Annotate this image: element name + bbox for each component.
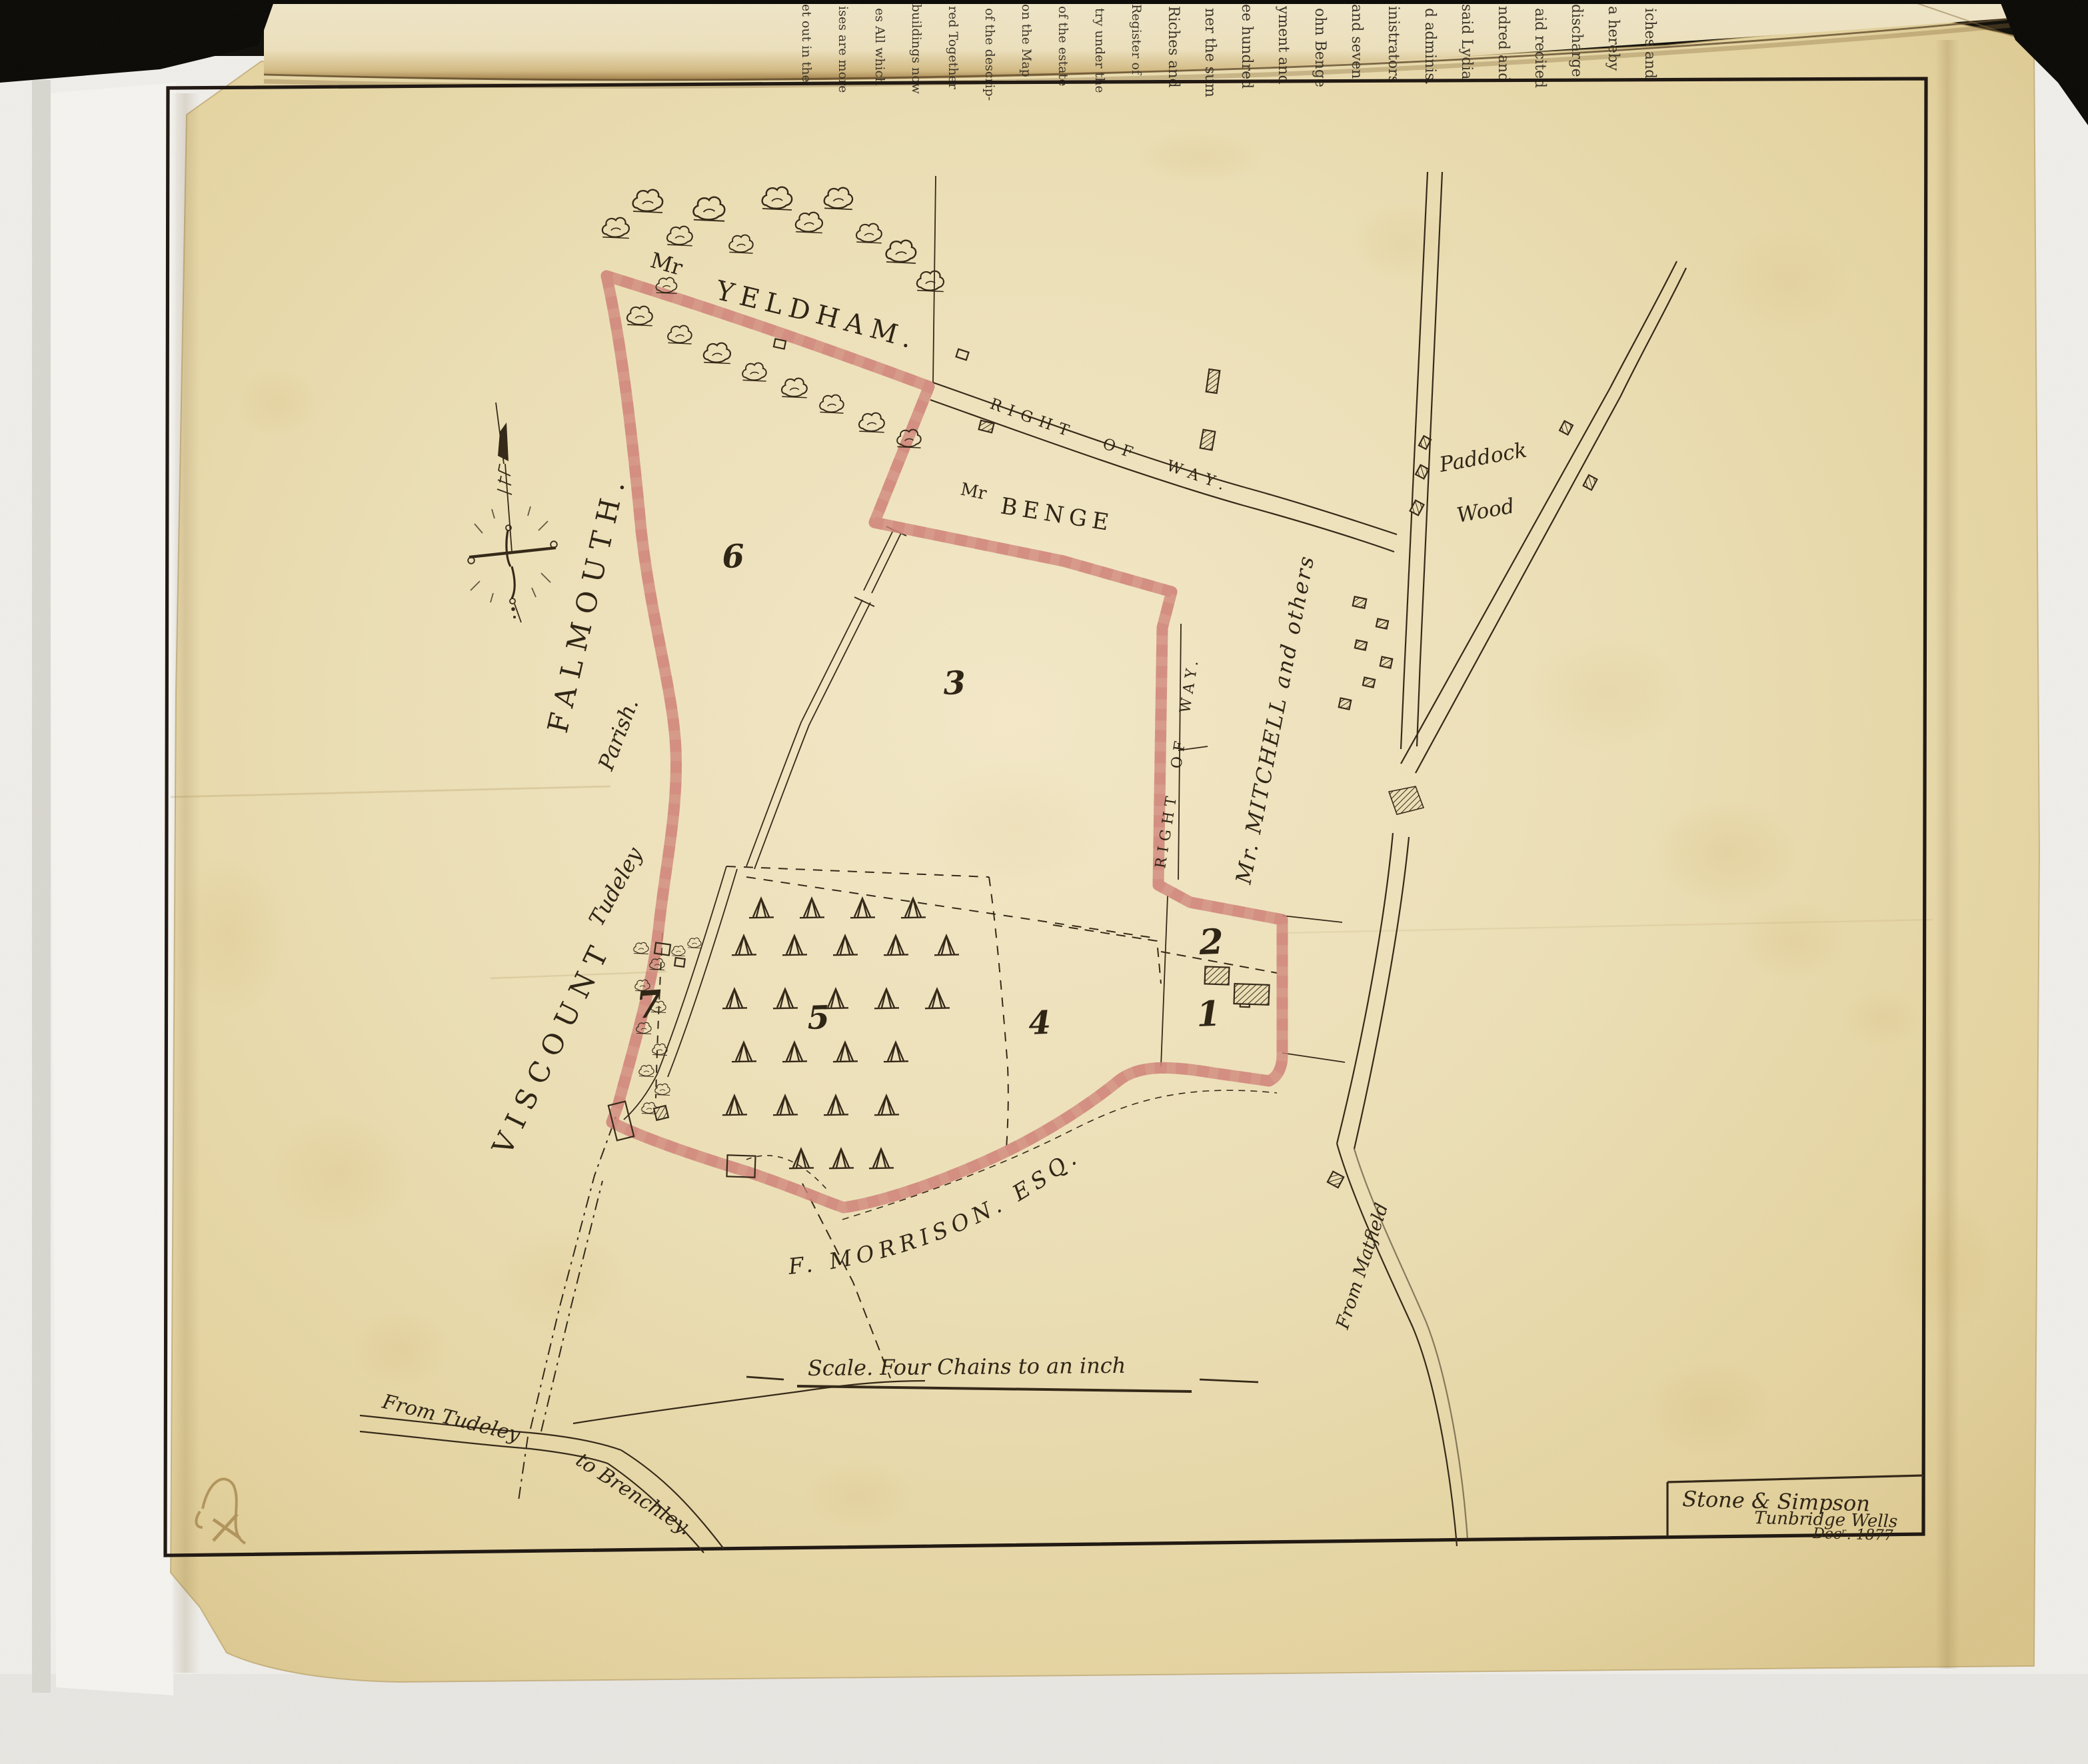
building-hatched [1206,369,1220,393]
book-text-line: on the Map [1019,4,1034,77]
paper-stain [1645,1359,1773,1455]
paper-stain [349,1309,451,1389]
book-text-line: ee hundred [1238,4,1255,89]
building-hatched [1339,698,1352,709]
book-text-line: said Lydia [1458,4,1475,79]
book-text-line: Register of [1129,4,1144,76]
building-hatched [1363,677,1375,687]
paper-stain [267,1113,413,1233]
book-text-line: aid recited [1532,8,1548,88]
book-text-line: a hereby [1605,6,1621,71]
book-text-line: d adminis. [1422,8,1438,85]
paper-stain [171,856,288,1016]
paper-stain [920,760,1106,893]
parcel-number-1: 1 [1196,994,1221,1035]
paper-stain [1890,1190,1997,1337]
book-text-line: of the estate [1056,6,1070,87]
building-hatched [1205,966,1230,984]
book-text-line: ohn Benge [1312,8,1328,87]
parcel-number-6: 6 [721,538,744,576]
parcel-number-4: 4 [1028,1004,1051,1042]
book-text-line: et out in the [799,4,814,83]
book-text-line: Riches and [1165,6,1182,88]
paper-stain [1719,227,1853,333]
building-hatched [1234,984,1269,1005]
book-text-line: and seven [1348,4,1365,79]
photographed-estate-map: et out in theises are morees All whichbu… [0,0,2088,1764]
photo-top-edge [267,0,2007,4]
book-text-line: iches and [1641,8,1658,79]
fold-shade [1935,40,1959,1669]
book-text-line: ndred and [1495,6,1512,82]
paper-stain [1526,633,1686,753]
paper-stain [804,1461,916,1530]
parcel-number-2: 2 [1198,922,1224,963]
map-sheet [171,19,2039,1682]
paper-stain [493,1226,626,1333]
book-text-line: discharge [1568,4,1585,77]
book-text-line: es All which [872,8,887,85]
book-text-line: of the descrip- [982,8,997,101]
loose-white-sheet [48,83,176,1695]
paper-stain [1136,131,1264,184]
parcel-number-3: 3 [942,664,966,702]
paper-stain [1842,989,1922,1048]
paper-stain [1737,901,1849,981]
backing-sheet-lower [0,1674,2088,1764]
building-hatched [1380,656,1393,668]
sheet-edge-shadow [32,80,51,1693]
parcel-number-7: 7 [634,982,664,1028]
book-text-line: inistrators [1385,6,1402,83]
building-hatched [1353,596,1367,608]
cartouche-date: Decʳ. 1877 [1812,1525,1893,1544]
book-text-line: ises are more [836,6,850,93]
book-text-line: buildings now [909,4,924,95]
book-text-line: ner the sum [1202,8,1218,97]
building-hatched [1200,430,1216,450]
parcel-number-5: 5 [806,999,830,1037]
building-hatched [1376,618,1388,628]
building-hatched [1355,640,1367,650]
building-hatched [654,1106,668,1120]
book-text-line: red Together [946,6,960,90]
paper-stain [235,368,320,437]
label-scale-note: Scale. Four Chains to an inch [808,1353,1126,1381]
paper-stain [1653,800,1799,906]
book-text-line: yment and [1275,5,1292,85]
